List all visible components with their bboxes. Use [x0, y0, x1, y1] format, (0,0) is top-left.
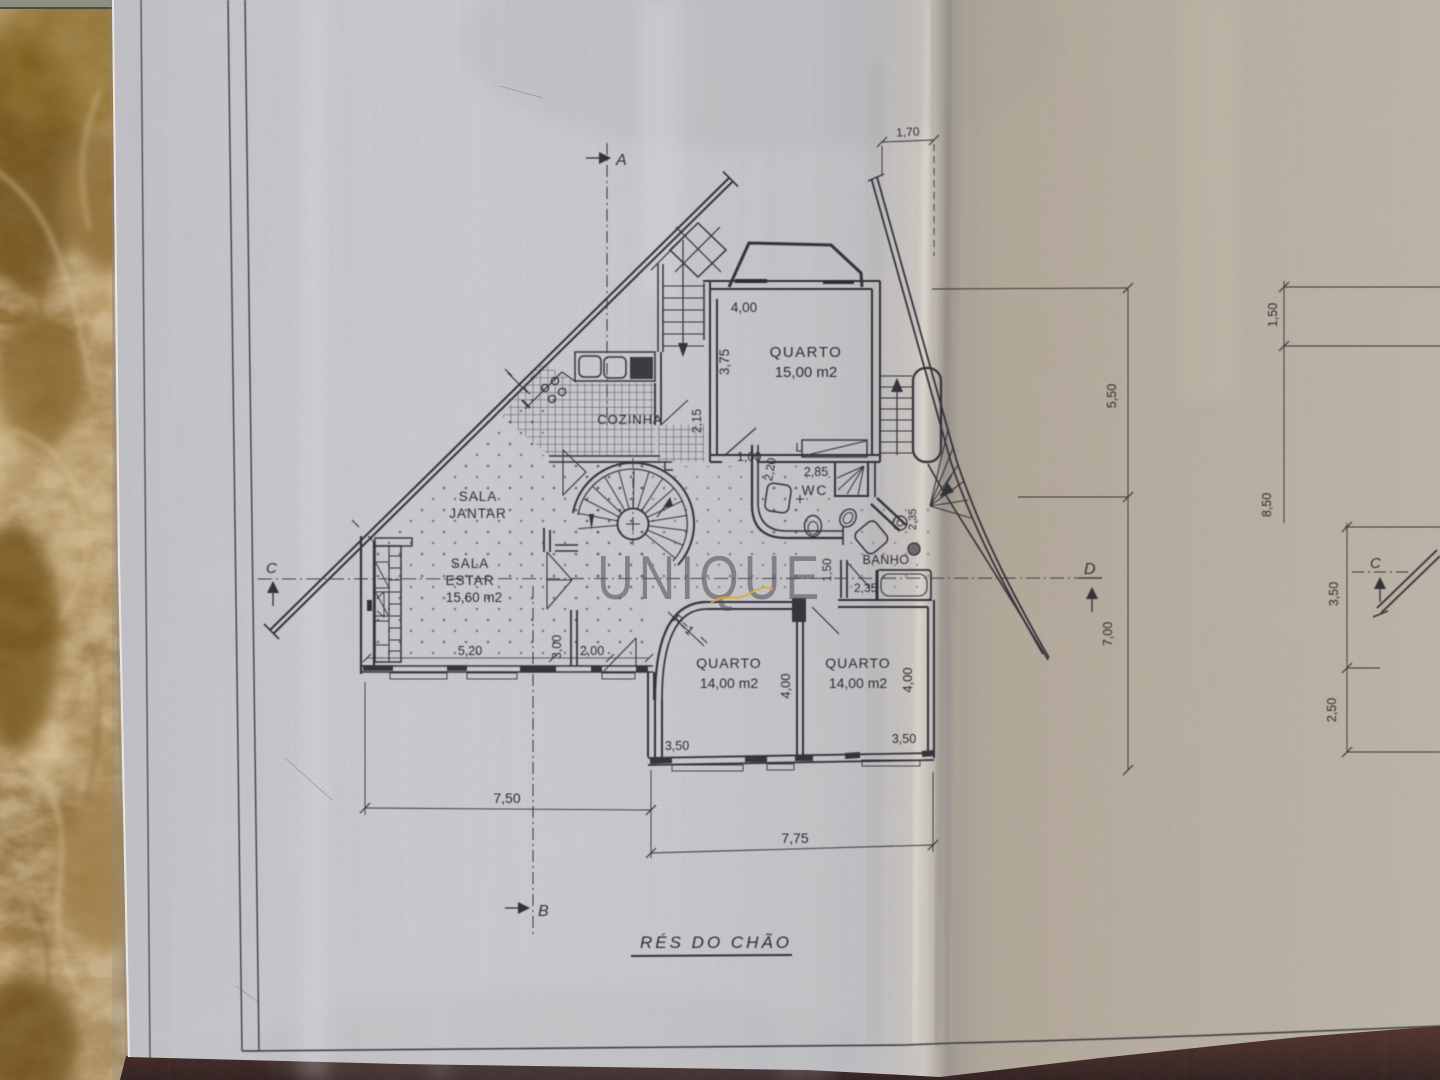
svg-text:7,75: 7,75	[781, 830, 808, 846]
svg-text:14,00 m2: 14,00 m2	[700, 675, 759, 691]
svg-text:QUARTO: QUARTO	[825, 655, 890, 671]
svg-text:UNIQUE: UNIQUE	[597, 544, 824, 613]
svg-text:8,50: 8,50	[1260, 493, 1274, 517]
svg-text:QUARTO: QUARTO	[770, 344, 843, 361]
svg-text:1,70: 1,70	[896, 124, 920, 139]
svg-text:SALA: SALA	[459, 489, 498, 504]
svg-text:14,00 m2: 14,00 m2	[829, 675, 888, 691]
svg-text:2,00: 2,00	[580, 644, 604, 658]
svg-text:7,50: 7,50	[493, 790, 520, 806]
svg-text:3,75: 3,75	[717, 349, 732, 375]
svg-text:QUARTO: QUARTO	[696, 655, 761, 671]
svg-text:1,00: 1,00	[737, 450, 761, 464]
svg-text:4,00: 4,00	[900, 667, 915, 692]
svg-text:C: C	[266, 560, 277, 577]
svg-text:A: A	[615, 152, 627, 169]
svg-text:4,00: 4,00	[731, 300, 757, 315]
svg-text:2,15: 2,15	[690, 409, 704, 433]
svg-text:3,00: 3,00	[550, 635, 564, 659]
svg-text:BANHO: BANHO	[863, 553, 910, 567]
svg-text:B: B	[538, 903, 549, 920]
svg-text:15,60 m2: 15,60 m2	[446, 590, 502, 605]
svg-text:3,50: 3,50	[1327, 582, 1341, 606]
svg-text:D: D	[1084, 561, 1096, 578]
svg-text:3,50: 3,50	[665, 739, 689, 753]
svg-text:C: C	[1370, 555, 1381, 572]
svg-text:5,50: 5,50	[1105, 384, 1119, 408]
svg-text:2,35: 2,35	[854, 581, 878, 595]
svg-text:7,00: 7,00	[1101, 622, 1115, 646]
svg-text:4,00: 4,00	[778, 673, 793, 698]
svg-text:COZINHA: COZINHA	[597, 412, 663, 427]
svg-text:ESTAR: ESTAR	[445, 573, 494, 588]
svg-text:2,35: 2,35	[907, 509, 919, 530]
svg-text:2,85: 2,85	[804, 465, 828, 479]
svg-text:5,20: 5,20	[458, 644, 482, 658]
svg-text:RÉS DO CHÃO: RÉS DO CHÃO	[640, 933, 792, 952]
svg-text:JANTAR: JANTAR	[449, 506, 507, 521]
svg-text:2,50: 2,50	[1325, 698, 1339, 722]
svg-text:15,00 m2: 15,00 m2	[775, 364, 838, 381]
svg-text:SALA: SALA	[451, 556, 490, 571]
svg-text:3,50: 3,50	[892, 732, 916, 746]
svg-text:1,50: 1,50	[1266, 303, 1280, 327]
svg-text:WC: WC	[802, 483, 829, 498]
